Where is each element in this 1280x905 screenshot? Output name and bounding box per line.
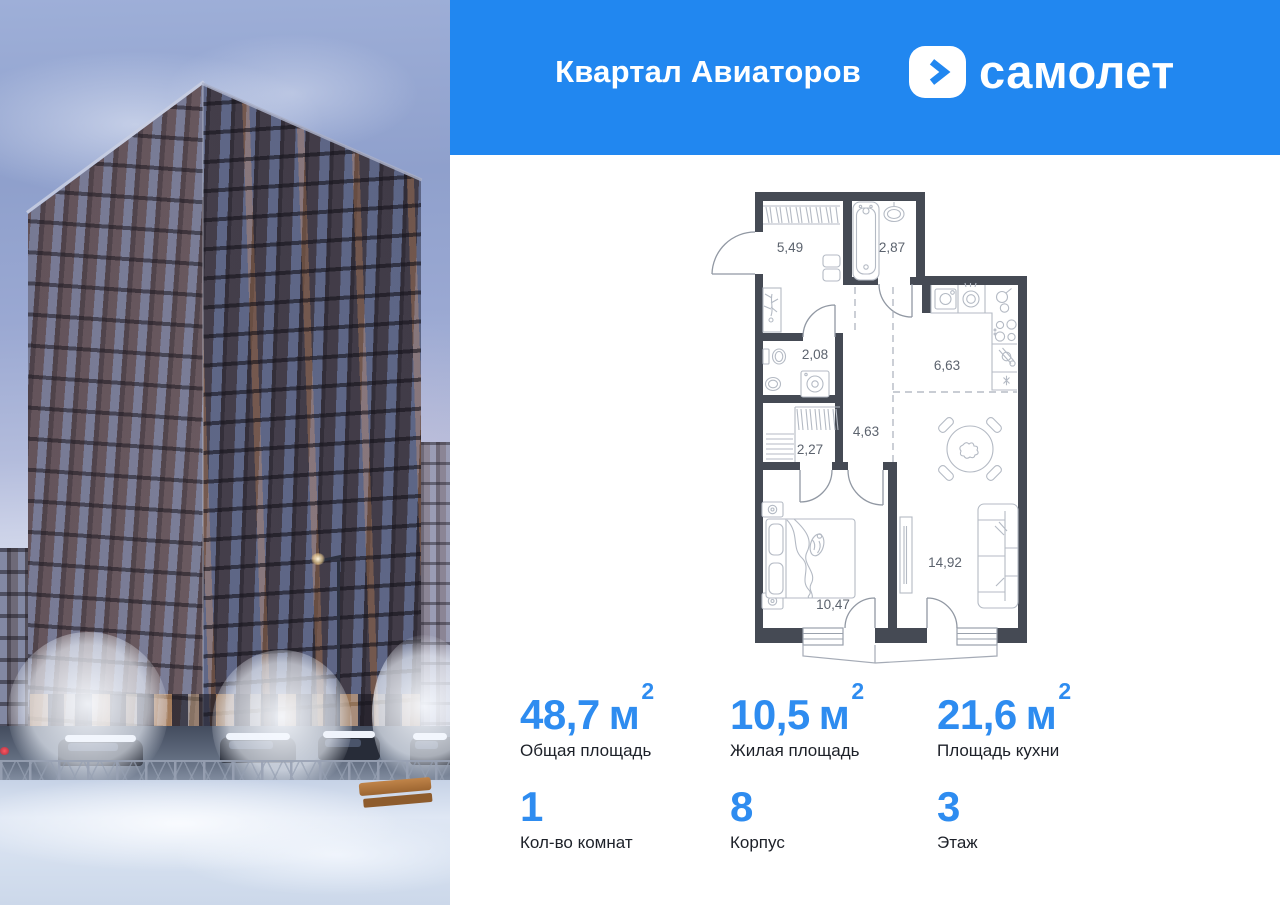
stat-label: Общая площадь — [520, 741, 730, 761]
info-pane: Квартал Авиаторов самолет — [450, 0, 1280, 905]
stat-total-area: 48,7м2 Общая площадь — [520, 684, 730, 761]
stat-value: 3 — [937, 785, 1147, 829]
stat-building-number: 8 Корпус — [730, 785, 940, 853]
tower-corner-edge — [202, 84, 204, 752]
stat-value: 8 — [730, 785, 940, 829]
stat-label: Этаж — [937, 833, 1147, 853]
room-area-label: 14,92 — [928, 555, 962, 570]
stat-value: 48,7м2 — [520, 684, 730, 737]
project-title: Квартал Авиаторов — [555, 54, 861, 90]
stat-value: 1 — [520, 785, 730, 829]
stat-floor-number: 3 Этаж — [937, 785, 1147, 853]
stat-living-area: 10,5м2 Жилая площадь — [730, 684, 940, 761]
stat-label: Кол-во комнат — [520, 833, 730, 853]
stat-value: 10,5м2 — [730, 684, 940, 737]
street-lamp-glow — [311, 553, 325, 565]
room-area-label: 6,63 — [934, 358, 960, 373]
stat-label: Жилая площадь — [730, 741, 940, 761]
floor-plan: 5,49 2,87 2,08 6,63 4,63 2,27 10,47 14,9… — [700, 180, 1072, 680]
room-area-label: 2,87 — [879, 240, 905, 255]
stat-label: Корпус — [730, 833, 940, 853]
room-area-label: 4,63 — [853, 424, 879, 439]
samolet-logo: самолет — [909, 46, 1175, 98]
apartment-card: Квартал Авиаторов самолет — [0, 0, 1280, 905]
project-header: Квартал Авиаторов самолет — [450, 0, 1280, 155]
balcony-outline — [803, 645, 997, 663]
stat-rooms-count: 1 Кол-во комнат — [520, 785, 730, 853]
chevron-right-icon — [920, 54, 956, 90]
bench-slat — [363, 793, 433, 808]
samolet-logo-text: самолет — [979, 48, 1175, 95]
stat-value: 21,6м2 — [937, 684, 1147, 737]
samolet-logo-icon — [909, 46, 966, 98]
stat-kitchen-area: 21,6м2 Площадь кухни — [937, 684, 1147, 761]
building-photo — [0, 0, 450, 905]
stat-label: Площадь кухни — [937, 741, 1147, 761]
room-area-label: 5,49 — [777, 240, 803, 255]
car-tail-light — [0, 747, 9, 755]
wooden-bench — [359, 777, 434, 817]
room-area-label: 2,27 — [797, 442, 823, 457]
room-area-label: 10,47 — [816, 597, 850, 612]
room-area-label: 2,08 — [802, 347, 828, 362]
